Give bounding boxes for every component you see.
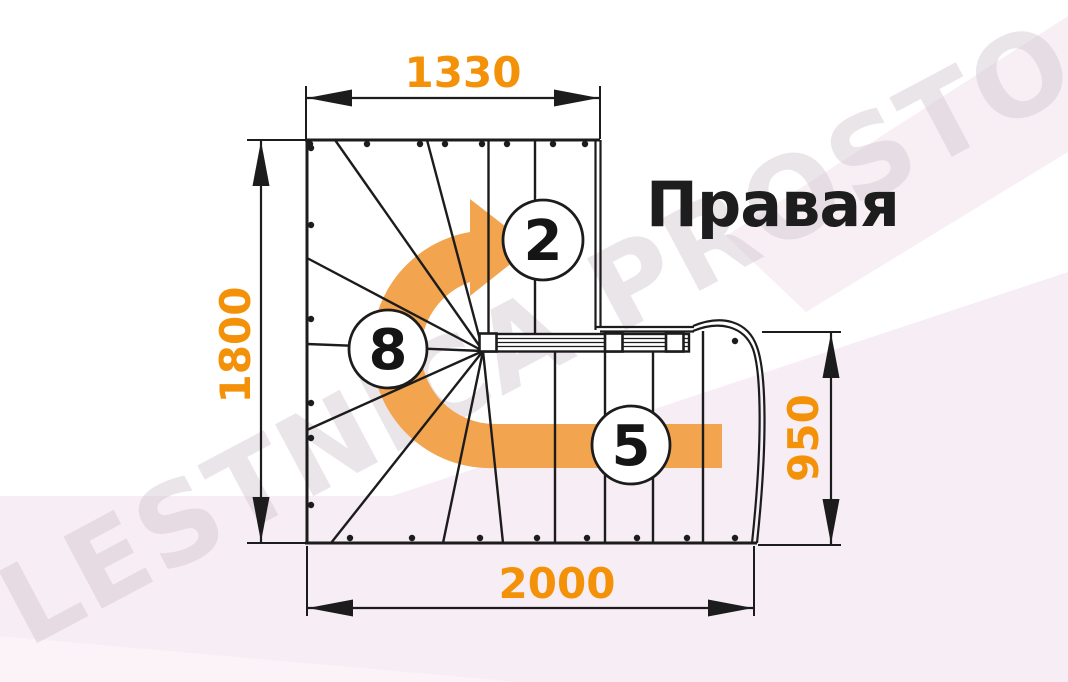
lower-flight-step-count: 5 <box>612 414 651 479</box>
stair-plan-diagram: LESTNICA PROSTO.RU <box>0 0 1068 682</box>
page-title: Правая <box>646 168 899 241</box>
newel-post <box>605 334 623 352</box>
newel-post <box>480 334 497 352</box>
winder-step-count: 8 <box>369 318 408 383</box>
dimension-left-height: 1800 <box>211 287 260 404</box>
dimension-bottom-width: 2000 <box>499 559 616 608</box>
newel-post <box>666 334 684 352</box>
upper-flight-step-count: 2 <box>524 209 563 274</box>
stair-plan-page: LESTNICA PROSTO.RU <box>0 0 1068 682</box>
dimension-right-height: 950 <box>779 394 828 482</box>
dimension-top-width: 1330 <box>405 48 522 97</box>
